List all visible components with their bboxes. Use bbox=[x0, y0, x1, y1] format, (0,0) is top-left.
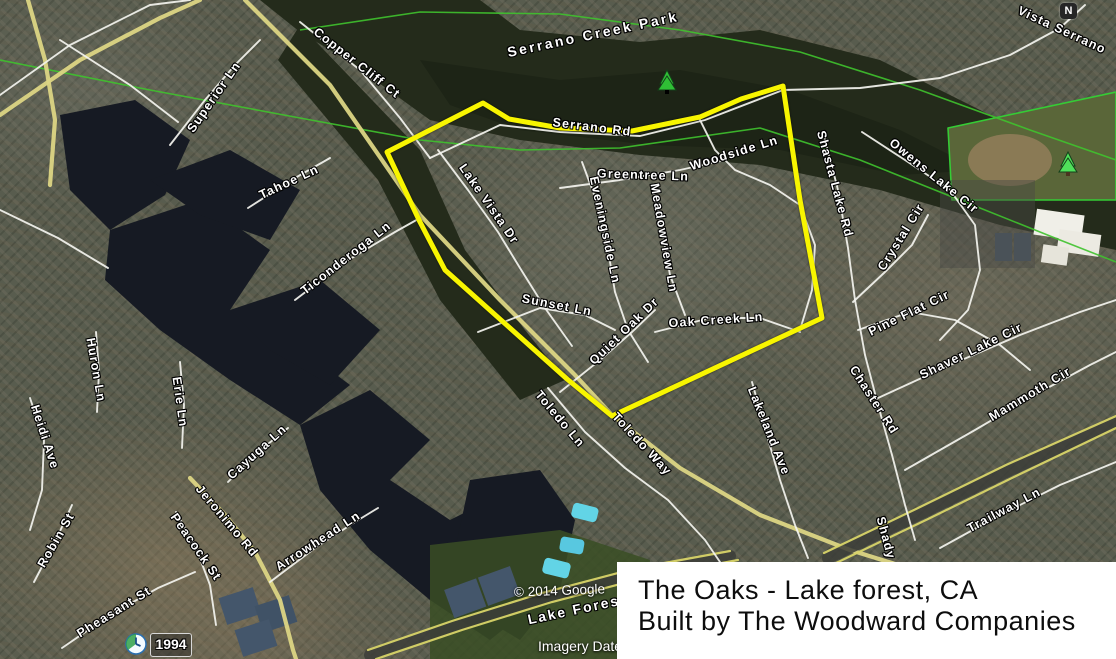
google-attribution: © 2014 Google bbox=[514, 581, 605, 599]
imagery-year-badge[interactable]: 1994 bbox=[150, 633, 192, 657]
north-compass-icon[interactable]: N bbox=[1060, 3, 1077, 19]
caption-card: The Oaks - Lake forest, CA Built by The … bbox=[617, 562, 1116, 659]
caption-line-2: Built by The Woodward Companies bbox=[638, 606, 1116, 637]
caption-line-1: The Oaks - Lake forest, CA bbox=[638, 575, 1116, 606]
imagery-date-label: Imagery Date bbox=[538, 638, 622, 654]
historical-imagery-clock-icon[interactable] bbox=[124, 632, 148, 656]
satellite-map-view[interactable]: Superior LnCopper Cliff CtTahoe LnTicond… bbox=[0, 0, 1116, 659]
map-feature-layer bbox=[0, 0, 1116, 659]
